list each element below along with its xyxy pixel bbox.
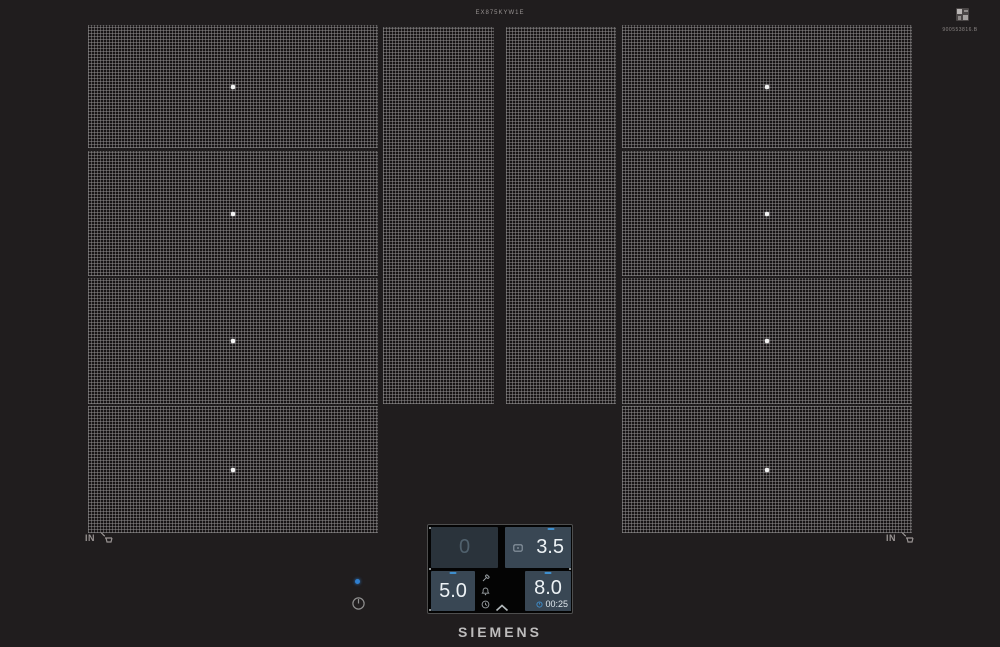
zone-center-dot: [765, 212, 769, 216]
control-panel: 0 3.5 5.0 8.0 00:25: [427, 524, 573, 614]
zone-select-tick: [545, 572, 552, 574]
timer-readout: 00:25: [536, 599, 568, 609]
panel-marker-dot: [429, 568, 431, 570]
induction-hob-surface: EX875KYW1E 900553816.B IN IN: [0, 0, 1000, 647]
certification-mark-icon: [956, 8, 969, 21]
zone-center-dot: [231, 85, 235, 89]
cooking-zone-right-1: [622, 25, 912, 148]
cooking-zone-left-4: [88, 406, 378, 533]
zone-center-dot: [765, 85, 769, 89]
zone-display-bottom-left[interactable]: 5.0: [431, 571, 475, 611]
cooking-zone-left-2: [88, 151, 378, 276]
power-led: [355, 579, 360, 584]
zone-center-dot: [231, 468, 235, 472]
power-level-value: 8.0: [534, 577, 562, 600]
cooking-zone-middle-left: [383, 27, 494, 404]
zone-select-tick: [450, 572, 457, 574]
in-label: IN: [85, 533, 95, 543]
zone-center-dot: [765, 339, 769, 343]
cooking-zone-middle-right: [506, 27, 616, 404]
timer-value: 00:25: [545, 599, 568, 609]
in-marker-left: IN: [85, 532, 113, 543]
brand-logo: SIEMENS: [0, 624, 1000, 640]
pan-placement-icon: [99, 532, 113, 543]
timer-icon: [536, 601, 543, 608]
power-icon: [351, 596, 366, 611]
cooking-zone-right-2: [622, 151, 912, 276]
wrench-icon[interactable]: [481, 574, 490, 583]
zone-center-dot: [765, 468, 769, 472]
power-level-value: 0: [459, 536, 470, 559]
clock-icon[interactable]: [481, 600, 490, 609]
zone-display-top-right[interactable]: 3.5: [505, 527, 571, 568]
pan-indicator-icon: [513, 544, 523, 552]
zone-display-bottom-right[interactable]: 8.0 00:25: [525, 571, 571, 611]
power-level-value: 3.5: [536, 536, 564, 559]
cooking-zone-right-4: [622, 406, 912, 533]
cooking-zone-right-3: [622, 278, 912, 404]
zone-center-dot: [231, 339, 235, 343]
in-marker-right: IN: [886, 532, 914, 543]
zone-center-dot: [231, 212, 235, 216]
main-power-button[interactable]: [351, 596, 366, 611]
bell-icon[interactable]: [481, 587, 490, 596]
certificate-code: 900553816.B: [930, 27, 990, 33]
cooking-zone-left-1: [88, 25, 378, 148]
cooking-zone-left-3: [88, 278, 378, 404]
power-level-value: 5.0: [439, 580, 467, 603]
in-label: IN: [886, 533, 896, 543]
chevron-up-icon[interactable]: [495, 604, 509, 612]
model-code: EX875KYW1E: [0, 10, 1000, 16]
zone-display-top-left[interactable]: 0: [431, 527, 498, 568]
pan-placement-icon: [900, 532, 914, 543]
zone-select-tick: [548, 528, 555, 530]
panel-marker-dot: [569, 568, 571, 570]
